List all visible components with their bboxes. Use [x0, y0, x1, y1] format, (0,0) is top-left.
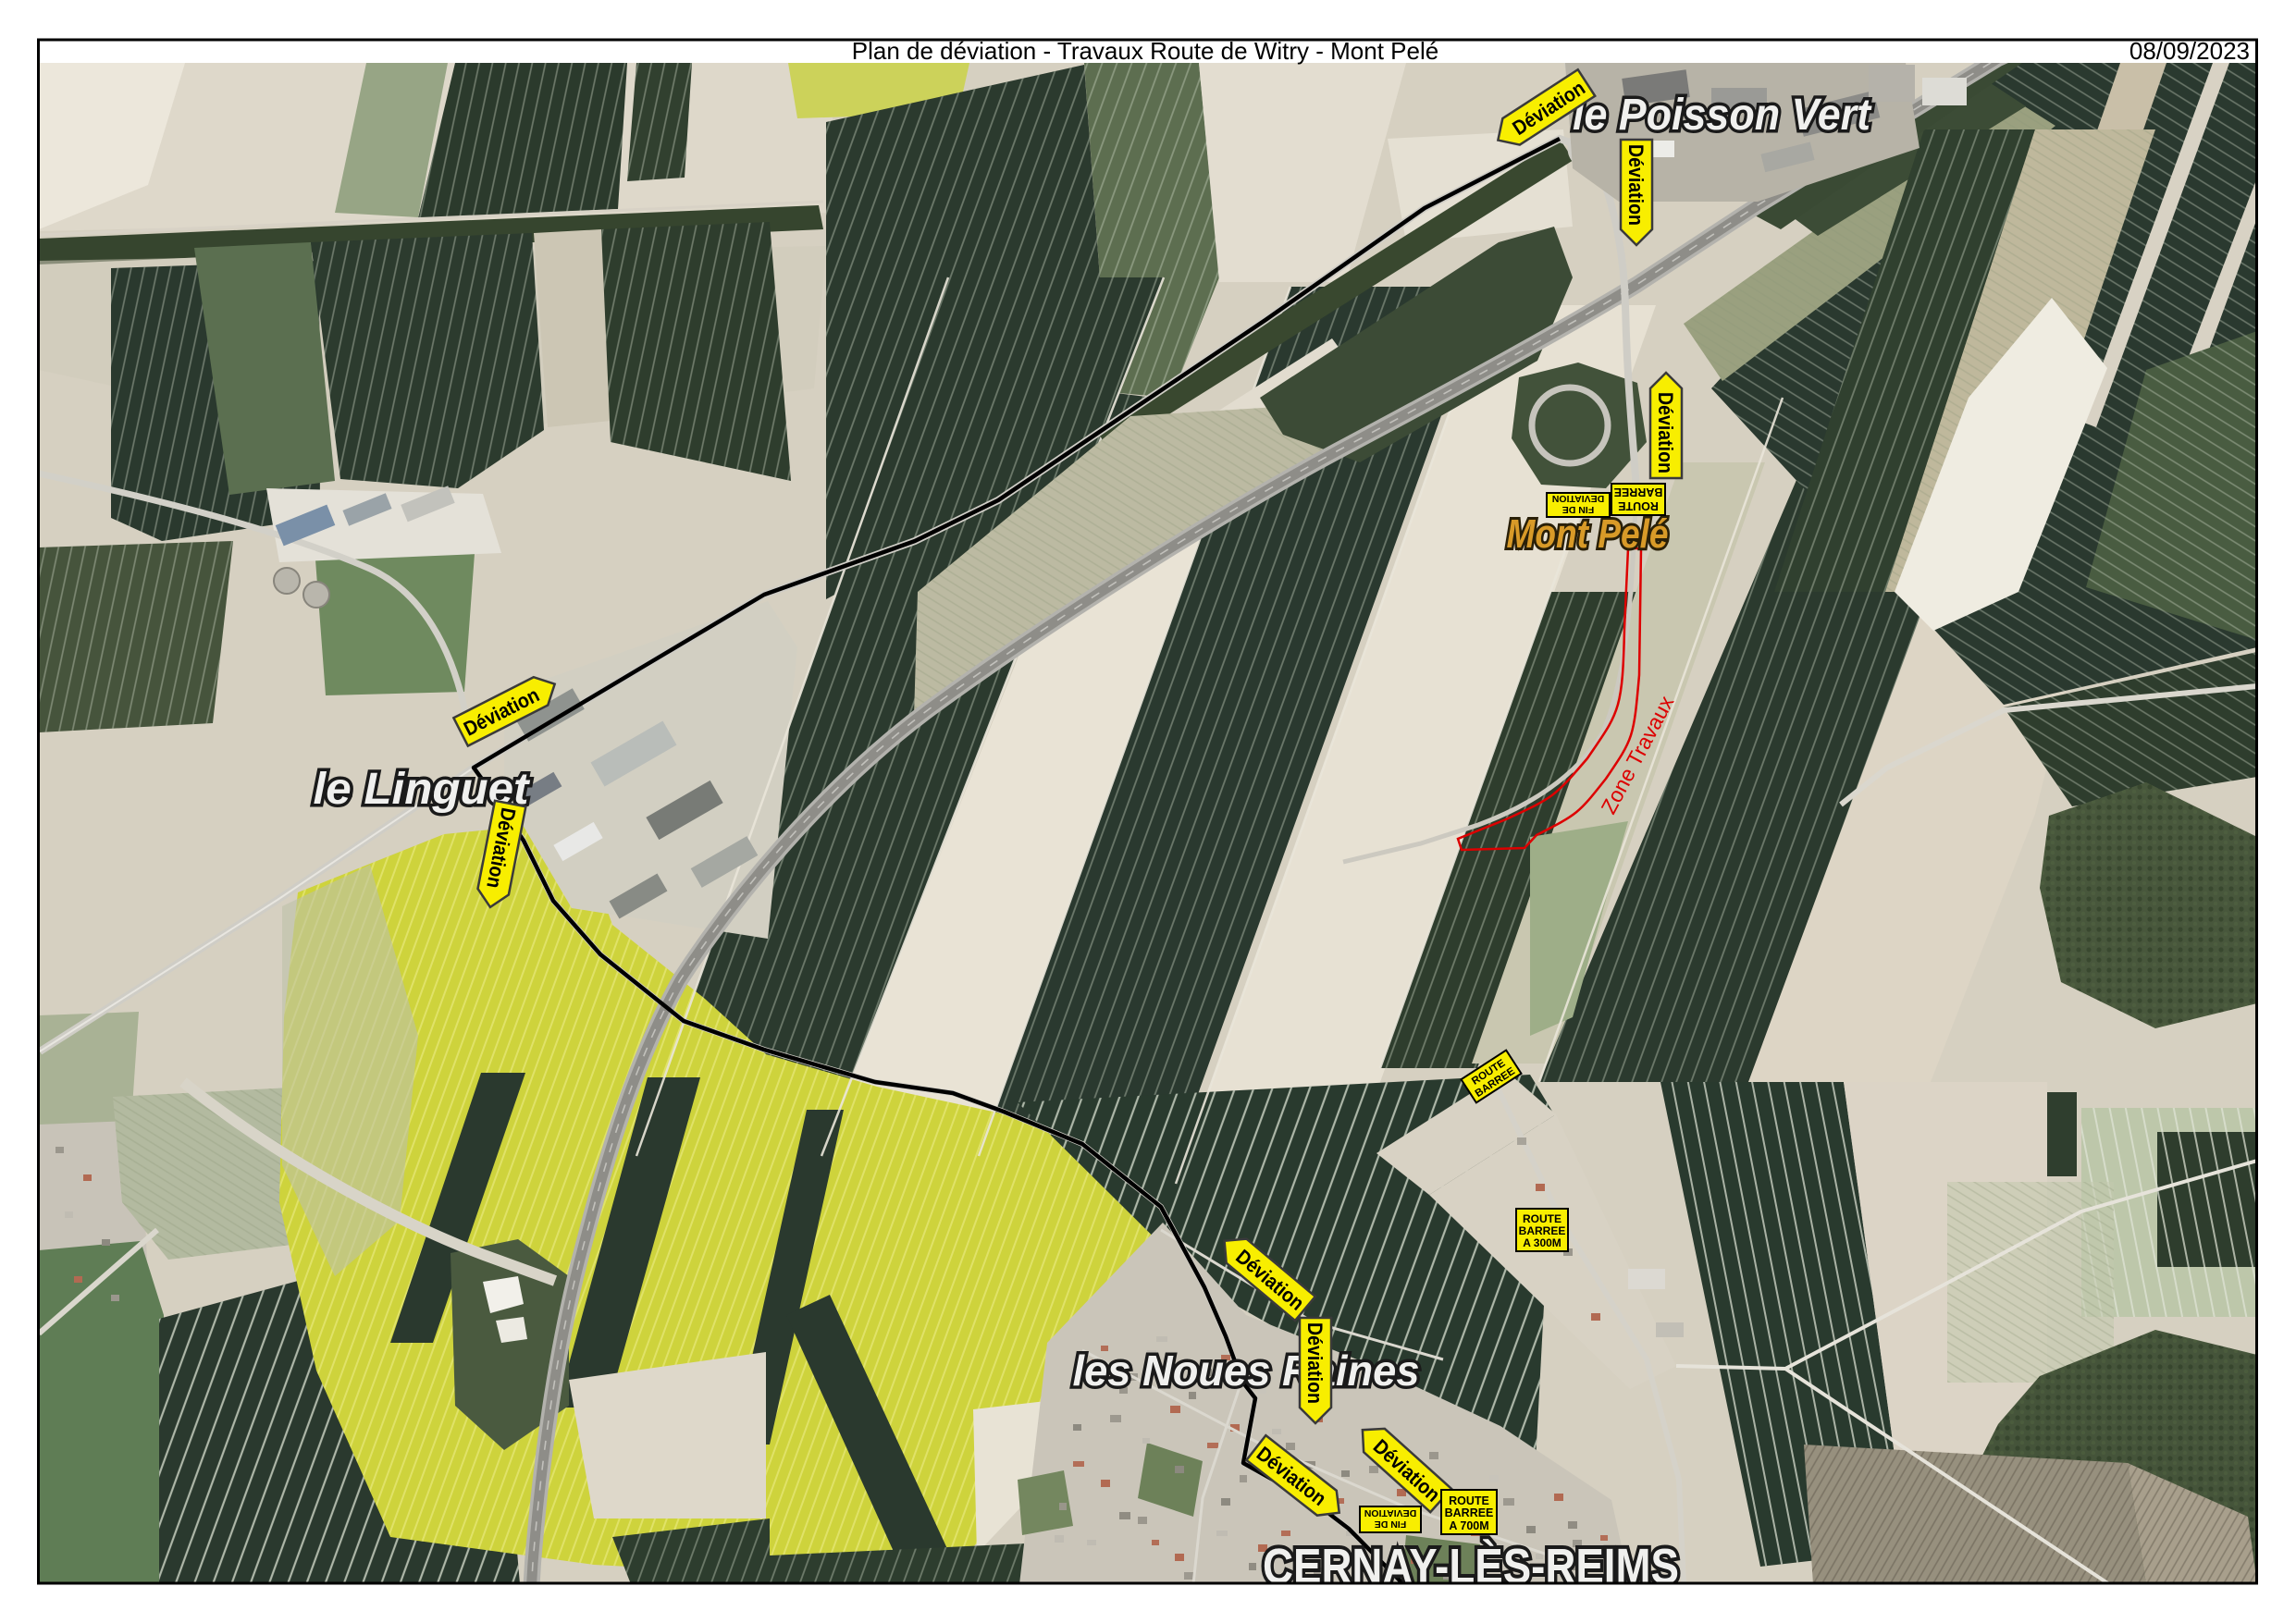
svg-text:A 300M: A 300M — [1523, 1236, 1562, 1249]
svg-text:ROUTE: ROUTE — [1618, 499, 1659, 512]
svg-text:Mont Pelé: Mont Pelé — [1507, 511, 1669, 557]
svg-text:BARREE: BARREE — [1445, 1506, 1494, 1519]
svg-text:ROUTE: ROUTE — [1523, 1212, 1562, 1225]
svg-text:le Poisson Vert: le Poisson Vert — [1573, 91, 1872, 140]
svg-text:DEVIATION: DEVIATION — [1552, 493, 1604, 504]
svg-text:les Noues Raines: les Noues Raines — [1073, 1346, 1420, 1395]
svg-text:ROUTE: ROUTE — [1449, 1494, 1489, 1507]
svg-text:Plan de déviation - Travaux Ro: Plan de déviation - Travaux Route de Wit… — [852, 37, 1438, 65]
svg-text:FIN DE: FIN DE — [1375, 1518, 1406, 1530]
svg-text:Déviation: Déviation — [1624, 144, 1648, 226]
svg-text:Déviation: Déviation — [1654, 392, 1677, 473]
svg-text:08/09/2023: 08/09/2023 — [2129, 37, 2250, 65]
svg-text:Déviation: Déviation — [1303, 1322, 1327, 1404]
svg-text:FIN DE: FIN DE — [1562, 504, 1594, 515]
svg-text:BARREE: BARREE — [1614, 486, 1663, 498]
svg-text:BARREE: BARREE — [1519, 1224, 1566, 1237]
svg-text:A 700M: A 700M — [1449, 1519, 1488, 1532]
svg-text:DEVIATION: DEVIATION — [1364, 1507, 1416, 1518]
